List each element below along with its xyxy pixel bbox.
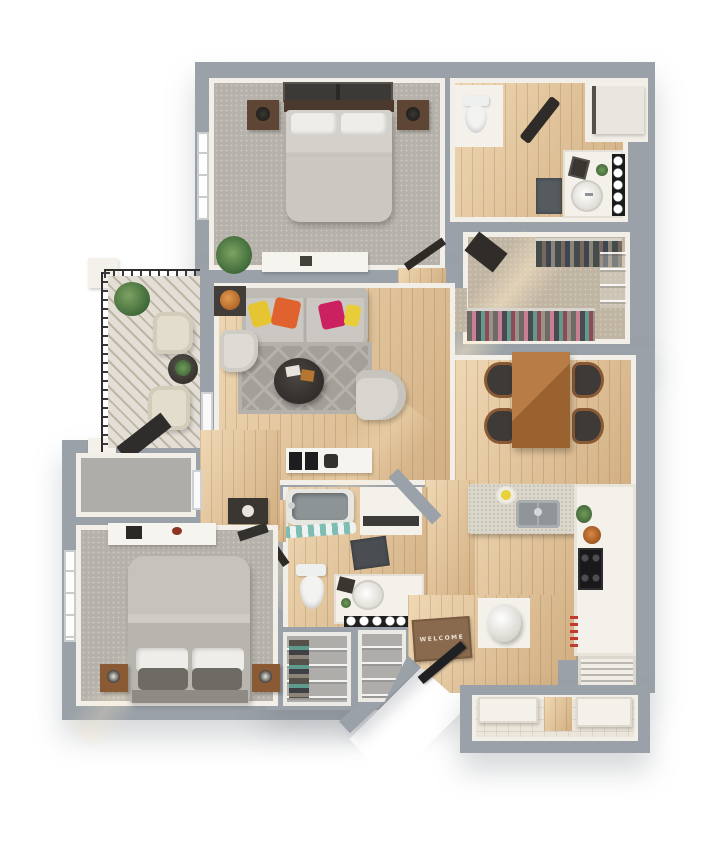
- dining-table: [512, 352, 570, 448]
- balcony-lounge-chair-1: [153, 312, 193, 354]
- bathroom-2-bath-mat: [350, 536, 390, 571]
- alcove-shelf: [363, 516, 419, 526]
- bedroom-1-dresser: [262, 252, 368, 272]
- living-accent-chair: [220, 330, 258, 372]
- welcome-mat-text: WELCOME: [414, 618, 471, 660]
- bedroom-1-wall-art: [283, 82, 393, 102]
- bedroom-1-pillow-left: [291, 113, 337, 135]
- bathtub-faucet: [288, 502, 295, 509]
- media-speaker-left: [289, 452, 302, 470]
- floor-plan-canvas: WELCOME: [0, 0, 706, 844]
- sofa-pillow-magenta: [318, 300, 347, 330]
- media-turntable: [324, 454, 338, 468]
- media-speaker-right: [305, 452, 318, 470]
- bedroom-2-pillow-dark-right: [192, 668, 242, 690]
- entry-pedestal-table: [487, 604, 521, 642]
- bedroom-1-plant: [216, 236, 252, 274]
- bedroom-1-window: [197, 132, 209, 220]
- coffee-table-tray: [300, 369, 314, 382]
- dining-chair-3: [572, 362, 604, 398]
- kitchen-plant: [576, 505, 592, 523]
- bedroom-2-window: [64, 550, 76, 642]
- closet-clothes-rack-bottom: [467, 308, 595, 341]
- closet-wire-shelving: [600, 252, 626, 308]
- storage-closet-door: [192, 470, 202, 510]
- patio-water-heater: [576, 697, 632, 727]
- bathroom-1-bath-mat: [536, 178, 562, 214]
- dining-chair-4: [572, 408, 604, 444]
- linen-closet-a-clothes: [289, 640, 309, 698]
- living-copper-lamp: [220, 290, 240, 310]
- bedroom-2-desk: [108, 523, 216, 545]
- bedroom-2-headboard: [132, 690, 248, 703]
- bedroom-2-lamp-right: [259, 670, 272, 683]
- kitchen-faucet: [534, 508, 542, 516]
- laundry-closet-sliding-door: [592, 86, 644, 134]
- bathroom-1-mirror-lights: [612, 154, 625, 216]
- balcony-table-plant: [175, 360, 191, 376]
- kitchen-range-stove: [578, 548, 603, 590]
- bedroom-1-lamp-right: [406, 107, 420, 121]
- bedroom-2-laptop: [126, 526, 142, 539]
- bedroom-1-pillow-right: [341, 113, 387, 135]
- bathtub-basin: [292, 493, 348, 520]
- bathroom-2-sink: [352, 580, 384, 610]
- bathroom-2-vanity-lights: [344, 616, 408, 627]
- bedroom-2-desk-item: [172, 527, 182, 535]
- living-armchair: [356, 370, 406, 420]
- bedroom-1-dresser-items: [300, 256, 312, 266]
- bathroom-1-plant: [596, 164, 608, 176]
- bedroom-1-lamp-left: [256, 107, 270, 121]
- bathroom-1-faucet: [585, 193, 593, 196]
- bedroom-2-pillow-dark-left: [138, 668, 188, 690]
- bathroom-1-sink: [571, 180, 603, 212]
- bathroom-2-plant: [341, 598, 351, 608]
- storage-closet-floor: [76, 453, 196, 517]
- closet-door-gap: [453, 288, 467, 332]
- kitchen-utensil-rail: [570, 616, 578, 650]
- hall-console-bowl: [242, 505, 254, 517]
- bedroom-1-door-gap: [398, 268, 446, 284]
- kitchen-copper-pot: [583, 526, 601, 544]
- bedroom-2-lamp-left: [107, 670, 120, 683]
- kitchen-fruit-bowl: [496, 486, 516, 504]
- patio-wood-strip: [544, 697, 572, 731]
- balcony-plant: [114, 282, 150, 316]
- patio-hvac-unit: [478, 697, 538, 723]
